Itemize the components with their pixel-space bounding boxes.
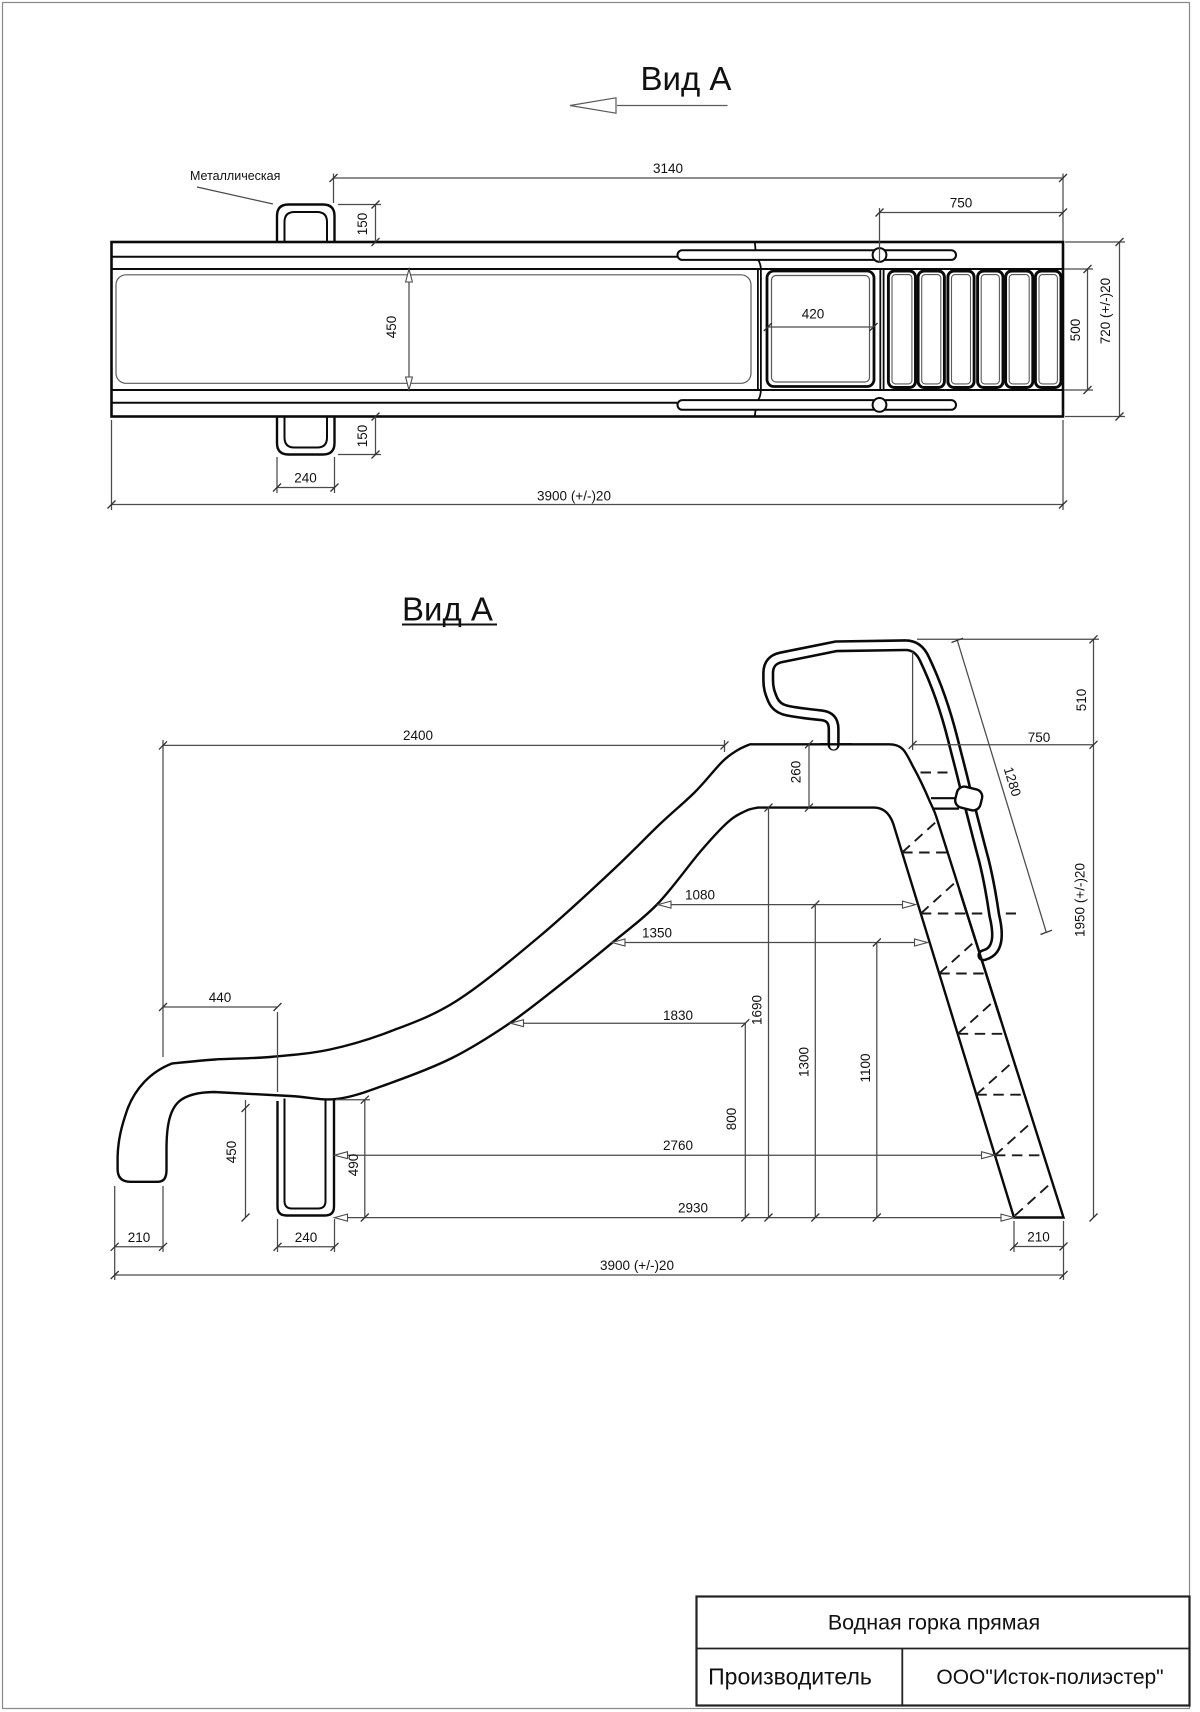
svg-text:1350: 1350 xyxy=(642,926,672,941)
svg-text:490: 490 xyxy=(346,1154,361,1177)
svg-text:1950 (+/-)20: 1950 (+/-)20 xyxy=(1073,863,1088,937)
svg-text:750: 750 xyxy=(1028,730,1051,745)
svg-text:2760: 2760 xyxy=(663,1138,693,1153)
svg-text:720 (+/-)20: 720 (+/-)20 xyxy=(1098,278,1113,344)
svg-text:1100: 1100 xyxy=(858,1053,873,1082)
svg-text:3900 (+/-)20: 3900 (+/-)20 xyxy=(537,489,611,504)
svg-text:Производитель: Производитель xyxy=(708,1664,872,1690)
svg-text:1300: 1300 xyxy=(796,1047,811,1077)
svg-text:210: 210 xyxy=(1027,1230,1050,1245)
svg-text:3900 (+/-)20: 3900 (+/-)20 xyxy=(600,1258,674,1273)
svg-text:260: 260 xyxy=(789,761,804,784)
svg-text:1830: 1830 xyxy=(663,1008,693,1023)
svg-text:450: 450 xyxy=(384,316,399,339)
svg-text:210: 210 xyxy=(128,1230,151,1245)
svg-text:3140: 3140 xyxy=(653,161,683,176)
svg-text:500: 500 xyxy=(1068,319,1083,342)
svg-text:2930: 2930 xyxy=(678,1201,708,1216)
svg-text:240: 240 xyxy=(294,471,317,486)
svg-text:1080: 1080 xyxy=(685,888,715,903)
svg-text:Вид А: Вид А xyxy=(641,60,732,97)
svg-text:2400: 2400 xyxy=(403,728,433,743)
svg-text:450: 450 xyxy=(224,1141,239,1164)
svg-text:1690: 1690 xyxy=(750,995,765,1025)
svg-text:Металлическая: Металлическая xyxy=(190,169,280,183)
svg-text:ООО"Исток-полиэстер": ООО"Исток-полиэстер" xyxy=(936,1666,1163,1689)
svg-text:750: 750 xyxy=(950,196,973,211)
svg-text:Вид А: Вид А xyxy=(402,591,493,628)
svg-text:240: 240 xyxy=(295,1230,318,1245)
svg-text:800: 800 xyxy=(724,1108,739,1131)
svg-text:420: 420 xyxy=(802,307,825,322)
svg-text:Водная горка прямая: Водная горка прямая xyxy=(828,1611,1040,1635)
svg-text:150: 150 xyxy=(355,213,370,236)
svg-text:150: 150 xyxy=(355,425,370,448)
svg-text:440: 440 xyxy=(209,990,232,1005)
svg-text:510: 510 xyxy=(1074,689,1089,712)
